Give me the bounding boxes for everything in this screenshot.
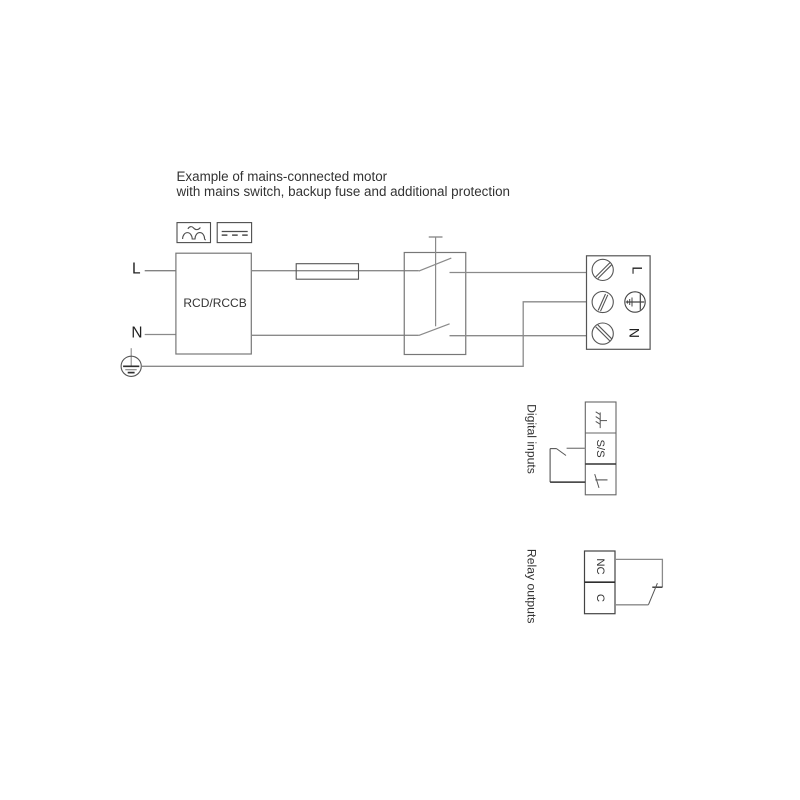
svg-text:with mains switch, backup fuse: with mains switch, backup fuse and addit…: [176, 184, 510, 199]
svg-text:N: N: [131, 325, 142, 342]
svg-text:Digital inputs: Digital inputs: [525, 404, 539, 474]
svg-text:L: L: [132, 261, 141, 278]
svg-text:S/S: S/S: [594, 439, 606, 458]
svg-text:Relay outputs: Relay outputs: [525, 549, 539, 624]
svg-text:RCD/RCCB: RCD/RCCB: [183, 296, 246, 310]
svg-text:L: L: [629, 266, 645, 274]
svg-text:C: C: [594, 594, 606, 602]
svg-text:NC: NC: [594, 558, 606, 574]
svg-text:Example of mains-connected mot: Example of mains-connected motor: [177, 169, 388, 184]
svg-text:N: N: [626, 328, 642, 338]
